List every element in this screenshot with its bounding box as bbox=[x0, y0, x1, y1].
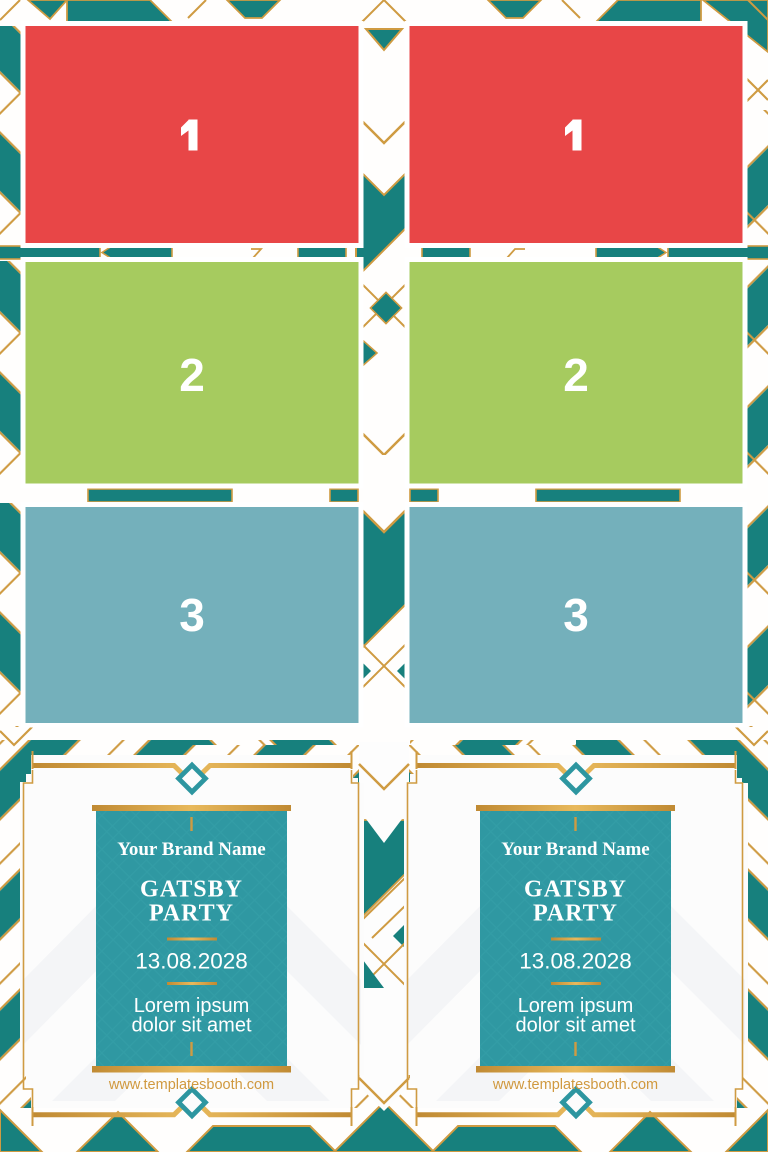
svg-text:PARTY: PARTY bbox=[149, 901, 234, 927]
svg-text:Your Brand Name: Your Brand Name bbox=[117, 839, 266, 860]
svg-text:www.templatesbooth.com: www.templatesbooth.com bbox=[108, 1077, 274, 1093]
svg-text:2: 2 bbox=[179, 349, 205, 401]
svg-text:3: 3 bbox=[563, 589, 589, 641]
svg-text:GATSBY: GATSBY bbox=[140, 877, 243, 903]
svg-text:dolor sit amet: dolor sit amet bbox=[131, 1015, 251, 1037]
svg-text:2: 2 bbox=[563, 349, 589, 401]
svg-text:3: 3 bbox=[179, 589, 205, 641]
svg-text:13.08.2028: 13.08.2028 bbox=[135, 949, 248, 974]
